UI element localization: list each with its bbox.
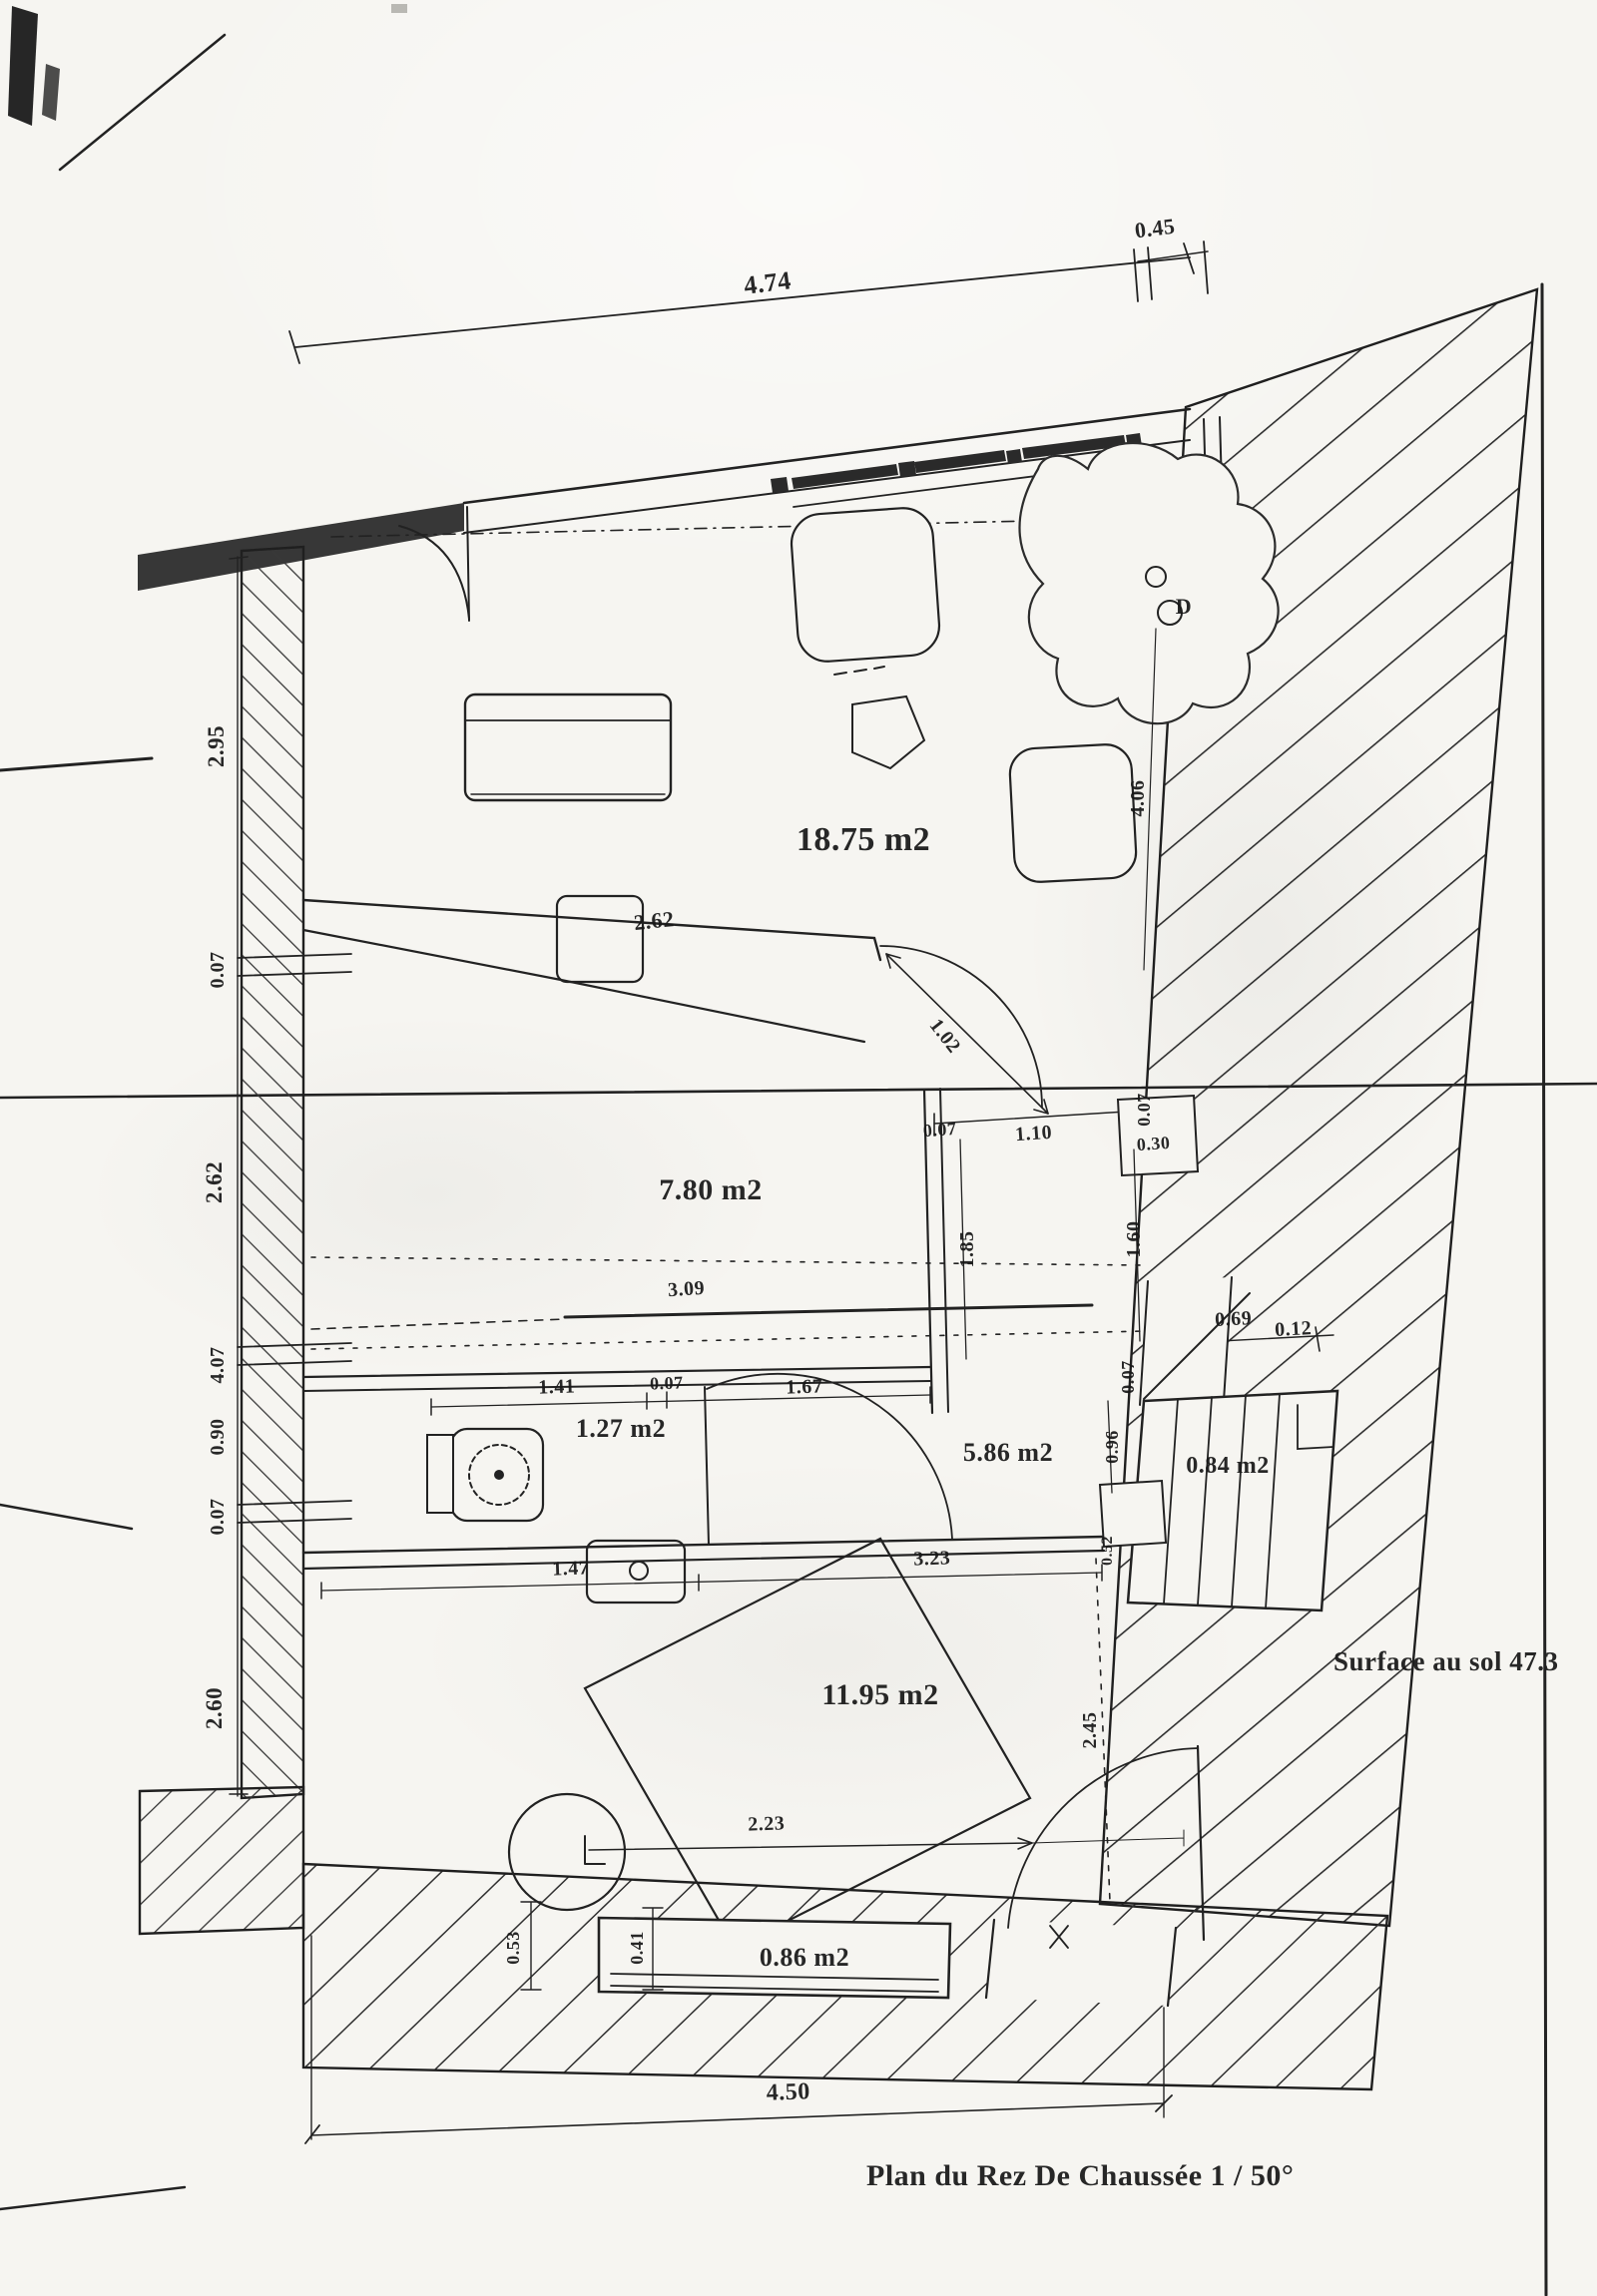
dim-0-07-e: 0.07: [1118, 1360, 1138, 1394]
room-area-7-80: 7.80 m2: [659, 1173, 763, 1206]
room-area-1-27: 1.27 m2: [576, 1414, 666, 1443]
room-area-11-95: 11.95 m2: [821, 1678, 938, 1711]
dim-left-0-90: 0.90: [207, 1419, 229, 1456]
dim-top-0-45: 0.45: [1133, 214, 1176, 243]
floor-plan-canvas: 4.740.452.950.072.624.070.900.072.6018.7…: [0, 0, 1597, 2296]
dim-left-4-07: 4.07: [207, 1347, 229, 1384]
side-table: [557, 896, 643, 982]
dim-1-41: 1.41: [538, 1375, 576, 1398]
dim-top-4-74: 4.74: [743, 265, 794, 300]
wall-bottom-left: [140, 1787, 303, 1934]
room-area-18-75: 18.75 m2: [797, 821, 930, 858]
room-area-0-84: 0.84 m2: [1186, 1453, 1270, 1479]
dim-left-0-07-b: 0.07: [207, 1499, 229, 1536]
dim-0-30: 0.30: [1136, 1133, 1171, 1154]
dim-4-06: 4.06: [1127, 780, 1149, 817]
dim-0-07-c: 0.07: [922, 1119, 957, 1141]
dim-left-2-95: 2.95: [204, 725, 229, 767]
dim-3-23: 3.23: [913, 1547, 951, 1570]
divider-wall-1: [303, 900, 1048, 1114]
small-table: [852, 696, 924, 768]
door-arc: [707, 1374, 952, 1539]
surface-note: Surface au sol 47.3: [1333, 1646, 1559, 1676]
dim-0-41: 0.41: [627, 1931, 647, 1965]
dim-2-62-inner: 2.62: [633, 906, 676, 935]
window-mullion: [771, 477, 789, 493]
bed: [465, 694, 671, 800]
room-area-0-86: 0.86 m2: [760, 1943, 849, 1972]
armchair: [1009, 743, 1138, 883]
dim-2-45: 2.45: [1079, 1712, 1101, 1749]
dim-1-60: 1.60: [1123, 1221, 1145, 1258]
dim-0-12: 0.12: [1275, 1317, 1313, 1341]
plan-title: Plan du Rez De Chaussée 1 / 50°: [866, 2159, 1294, 2192]
dim-1-10: 1.10: [1014, 1122, 1052, 1147]
dim-2-23: 2.23: [748, 1812, 786, 1835]
room-area-5-86: 5.86 m2: [963, 1438, 1053, 1467]
cistern: [427, 1435, 453, 1513]
dim-left-2-60: 2.60: [202, 1687, 227, 1729]
dim-1-47: 1.47: [552, 1557, 590, 1580]
window-pane: [792, 464, 898, 489]
dim-1-85: 1.85: [956, 1231, 978, 1268]
scanned-floor-plan-page: 4.740.452.950.072.624.070.900.072.6018.7…: [0, 0, 1597, 2296]
window-mullion: [1006, 449, 1022, 464]
sink-icon: [587, 1541, 685, 1603]
dim-1-02: 1.02: [925, 1015, 965, 1058]
dim-4-50: 4.50: [766, 2078, 810, 2106]
dim-left-2-62: 2.62: [202, 1161, 227, 1203]
dim-0-52: 0.52: [1099, 1536, 1116, 1566]
dim-0-96: 0.96: [1102, 1430, 1122, 1464]
wall-left: [242, 547, 303, 1798]
dim-0-53: 0.53: [503, 1931, 523, 1965]
dim-0-07-f: 0.07: [650, 1372, 684, 1393]
dim-1-67: 1.67: [786, 1375, 823, 1398]
dim-3-09: 3.09: [667, 1277, 705, 1302]
dim-0-69: 0.69: [1215, 1307, 1253, 1331]
armchair: [790, 506, 941, 664]
window-mullion: [898, 461, 916, 477]
dim-left-0-07-a: 0.07: [207, 952, 229, 989]
door-label-d: D: [1176, 594, 1192, 619]
dim-0-07-d: 0.07: [1134, 1093, 1154, 1127]
